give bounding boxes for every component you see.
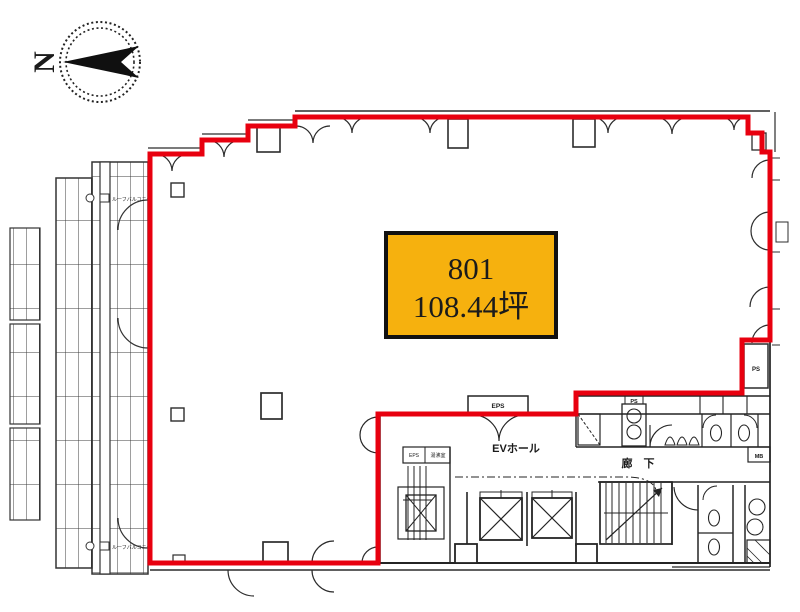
unit-outline: [150, 117, 770, 563]
mb-label: MB: [755, 454, 764, 460]
compass-north-letter: N: [28, 51, 61, 73]
unit-area-label: 801 108.44坪: [386, 233, 556, 337]
north-arrow-icon: [63, 46, 139, 78]
unit-number: 801: [448, 251, 495, 286]
basin-icon: [747, 519, 763, 535]
pantry-label: 湯沸室: [430, 452, 445, 459]
toilet-icon: [739, 425, 750, 441]
east-wall: PS: [744, 158, 788, 567]
floor-plan-drawing: N ルーフバルコニー ルーフバルコニー: [0, 0, 800, 612]
elevator-1: [480, 498, 522, 540]
balcony-note-top: ルーフバルコニー: [112, 197, 152, 203]
urinal-icon: [665, 437, 675, 445]
ps-shaft: [744, 344, 768, 388]
unit-area: 108.44坪: [413, 289, 529, 324]
urinal-icon: [677, 437, 687, 445]
corridor-label: 廊 下: [622, 456, 655, 470]
interior-columns: [171, 183, 288, 563]
pillar: [257, 126, 280, 152]
toilet-icon: [709, 510, 720, 526]
stairs: [600, 482, 672, 544]
eps-room-label: EPS: [409, 453, 420, 459]
eps-top-label: EPS: [491, 403, 505, 410]
floor-plan-page: N ルーフバルコニー ルーフバルコニー: [0, 0, 800, 612]
urinal-icon: [689, 437, 699, 445]
balcony-grid: ルーフバルコニー ルーフバルコニー: [10, 162, 152, 574]
ev-hall-label: EVホール: [492, 442, 540, 455]
compass-icon: N: [28, 22, 140, 102]
ps-right-label: PS: [752, 367, 760, 373]
toilet-icon: [709, 539, 720, 555]
pillar: [448, 119, 468, 148]
pillar: [573, 119, 595, 147]
basin-icon: [749, 499, 765, 515]
toilet-icon: [711, 425, 722, 441]
washroom-upper: PS MB: [578, 396, 770, 462]
washroom-lower: [672, 482, 770, 567]
balcony-note-bottom: ルーフバルコニー: [112, 545, 152, 551]
elevator-2: [532, 498, 572, 538]
elevators: [455, 490, 597, 563]
